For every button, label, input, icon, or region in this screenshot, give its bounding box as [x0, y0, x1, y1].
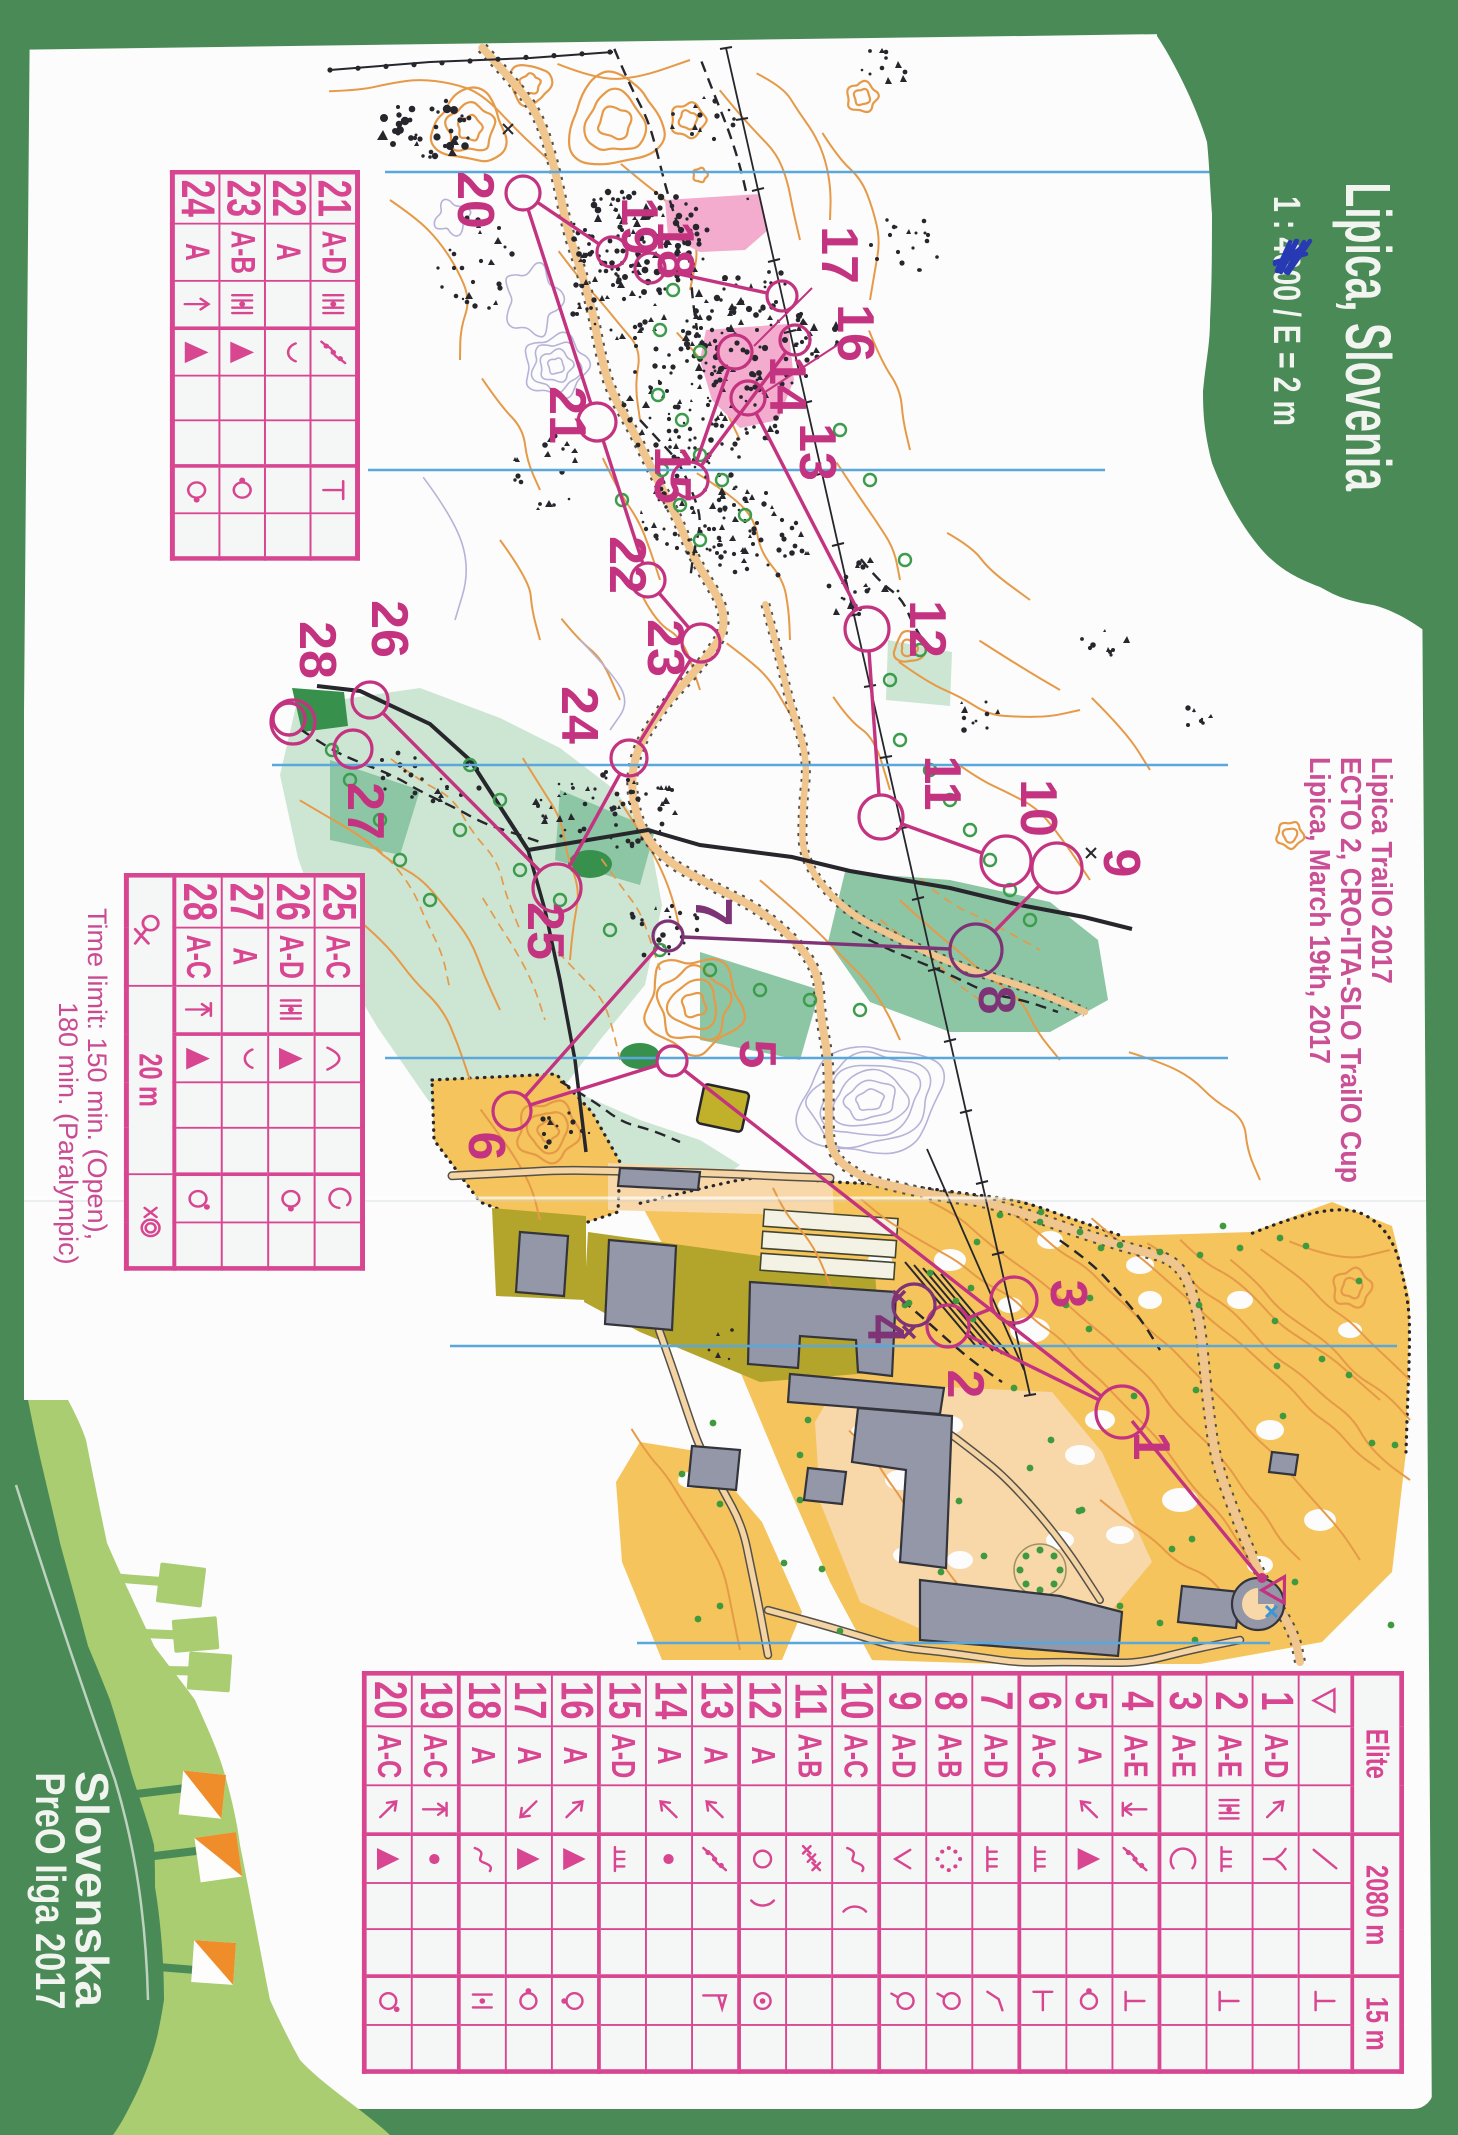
- svg-text:PreO liga 2017: PreO liga 2017: [27, 1773, 74, 2010]
- svg-text:Lipica, Slovenia: Lipica, Slovenia: [1332, 182, 1403, 491]
- svg-text:1 : 4000 / E = 2 m: 1 : 4000 / E = 2 m: [1265, 196, 1307, 426]
